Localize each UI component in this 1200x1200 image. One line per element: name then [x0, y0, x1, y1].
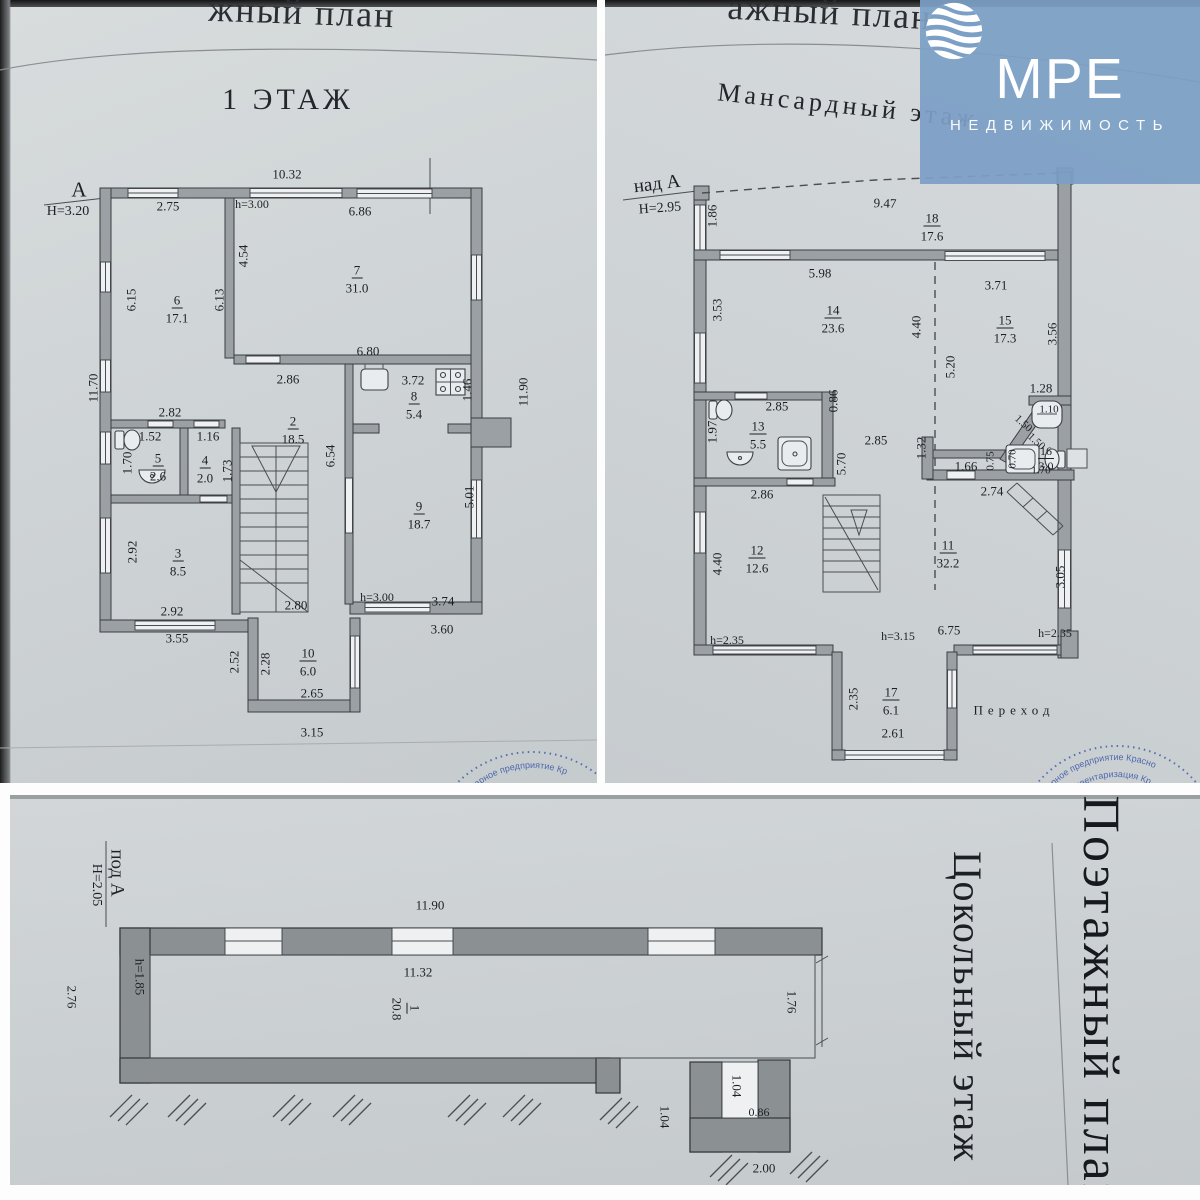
dimension-label: 5.98: [809, 267, 832, 280]
logo-wordmark: М РЕ: [995, 51, 1125, 108]
dimension-label: 11.32: [404, 966, 433, 979]
ladder-icon: [1007, 483, 1063, 535]
room-area: 31.0: [346, 282, 369, 295]
globe-icon: [923, 0, 985, 62]
room-area: 6.1: [883, 704, 899, 717]
label-perekhod: Переход: [973, 704, 1054, 717]
sink-icon: [727, 452, 753, 465]
axis-label: под А: [108, 849, 127, 896]
floorplan-collage: нитарное предприятие Кр жный план1 ЭТАЖА…: [0, 0, 1200, 1200]
room-area: 5.4: [406, 408, 422, 421]
dimension-label: 1.70: [1031, 466, 1050, 477]
dimension-label: 2.92: [161, 605, 184, 618]
photo-first-floor-plan: нитарное предприятие Кр жный план1 ЭТАЖА…: [0, 0, 597, 783]
photo-attic-floor-plan: тарное предприятие Красно ая инвентариза…: [605, 0, 1200, 783]
room-number: 1: [407, 1003, 422, 1014]
dimension-label: h=3.00: [360, 591, 394, 603]
room-area: 18.5: [282, 433, 305, 446]
dimension-label: 2.92: [126, 541, 139, 564]
room-number: 6: [172, 294, 183, 309]
dimension-label: 2.61: [882, 727, 905, 740]
dimension-label: 6.15: [125, 289, 138, 312]
room-area: 12.6: [746, 562, 769, 575]
plan1-title: 1 ЭТАЖ: [222, 85, 354, 115]
dimension-label: 1.32: [915, 437, 928, 460]
room-area: 18.7: [408, 518, 431, 531]
dimension-label: 11.90: [517, 378, 530, 407]
dimension-label: 5.20: [944, 356, 957, 379]
dimension-label: 3.05: [1054, 566, 1067, 589]
dimension-label: 2.35: [847, 688, 860, 711]
kitchen-sink-icon: [361, 364, 388, 390]
dimension-label: 9.47: [873, 196, 896, 210]
logo-letter-re: РЕ: [1045, 51, 1125, 108]
dimension-label: 6.54: [324, 445, 337, 468]
dimension-label: 1.28: [1030, 382, 1053, 395]
dimension-label: 2.75: [157, 200, 180, 213]
dimension-label: 4.40: [711, 553, 724, 576]
room-number: 15: [997, 314, 1014, 329]
svg-text:нитарное предприятие Кр: нитарное предприятие Кр: [461, 760, 569, 783]
shower-icon: [778, 437, 811, 470]
page-title-vertical: Поэтажный план: [1074, 795, 1126, 1185]
dimension-label: 1.10: [1039, 405, 1058, 416]
room-number: 17: [883, 686, 900, 701]
dimension-label: 4.54: [237, 245, 250, 268]
dimension-label: 2.82: [159, 406, 182, 419]
dimension-label: 2.76: [66, 986, 79, 1009]
dimension-label: 5.01: [463, 486, 476, 509]
room-area: 8.5: [170, 565, 186, 578]
dimension-label: 0.86: [749, 1106, 770, 1118]
room-number: 3: [173, 547, 184, 562]
dimension-label: 6.80: [357, 345, 380, 358]
dimension-label: 1.46: [461, 379, 474, 402]
room-number: 18: [924, 212, 941, 227]
dimension-label: 0.70: [1008, 449, 1019, 468]
dimension-label: 5.70: [835, 453, 848, 476]
dimension-label: 11.90: [416, 899, 445, 912]
dimension-label: 1.97: [706, 421, 719, 444]
dimension-label: 2.28: [259, 653, 272, 676]
logo-letter-m: М: [995, 51, 1044, 108]
room-number: 7: [352, 264, 363, 279]
dimension-label: 3.56: [1046, 323, 1059, 346]
dimension-label: 3.72: [402, 374, 425, 387]
room-area: 17.6: [921, 230, 944, 243]
room-area: 17.3: [994, 332, 1017, 345]
room-number: 14: [825, 304, 842, 319]
room-number: 8: [409, 390, 420, 405]
dimension-label: 1.04: [659, 1106, 672, 1129]
room-area: 6.0: [300, 665, 316, 678]
registration-stamp: нитарное предприятие Кр: [426, 752, 597, 783]
room-area: 32.2: [937, 557, 960, 570]
logo-subtitle: НЕДВИЖИМОСТЬ: [950, 117, 1170, 134]
dimension-label: 1.70: [121, 452, 134, 475]
dimension-label: 3.15: [301, 726, 324, 739]
dimension-label: h=1.85: [134, 959, 147, 996]
room-number: 13: [750, 420, 767, 435]
staircase-icon: [823, 495, 880, 592]
room-area: 17.1: [166, 312, 189, 325]
toilet-icon: [115, 430, 140, 450]
dimension-label: 6.13: [213, 289, 226, 312]
room-number: 16: [1038, 445, 1054, 459]
room-area: 2.0: [197, 472, 213, 485]
dimension-label: 2.52: [228, 651, 241, 674]
dimension-label: h=2.35: [710, 634, 744, 646]
room-area: 2.6: [150, 470, 166, 483]
room-number: 2: [288, 415, 299, 430]
photo-basement-plan: под АН=2.0511.9011.32120.8h=1.852.761.76…: [10, 795, 1200, 1185]
staircase-icon: [240, 443, 308, 612]
toilet-icon: [709, 400, 732, 420]
dimension-label: 2.86: [751, 488, 774, 501]
height-label: Н=2.95: [638, 201, 681, 218]
dimension-label: h=3.00: [235, 198, 269, 210]
room-number: 10: [300, 647, 317, 662]
dimension-label: 1.66: [955, 460, 978, 473]
dimension-label: 2.86: [277, 373, 300, 386]
dimension-label: 1.73: [221, 460, 234, 483]
dimension-label: 4.40: [910, 316, 923, 339]
dimension-label: 1.04: [731, 1075, 744, 1098]
dimension-label: 2.85: [766, 400, 789, 413]
dimension-label: 3.60: [431, 623, 454, 636]
dimension-label: 1.86: [706, 205, 719, 228]
basement-drawing: [10, 795, 1200, 1185]
dimension-label: 3.55: [166, 632, 189, 645]
room-area: 5.5: [750, 438, 766, 451]
dimension-label: 6.75: [938, 624, 961, 637]
room-number: 4: [200, 454, 211, 469]
room-area: 20.8: [391, 998, 404, 1021]
room-number: 5: [153, 452, 164, 467]
dimension-label: 1.76: [786, 991, 799, 1014]
room-number: 12: [749, 544, 766, 559]
dimension-label: 2.85: [865, 434, 888, 447]
dimension-label: 0.86: [827, 390, 840, 413]
dimension-label: 6.86: [349, 205, 372, 218]
dimension-label: 0.75: [986, 451, 997, 470]
axis-label: А: [71, 180, 86, 201]
dimension-label: 1.52: [139, 430, 162, 443]
dimension-label: 10.32: [272, 168, 301, 181]
room-number: 9: [414, 500, 425, 515]
dimension-label: 3.74: [432, 595, 455, 608]
height-label: Н=2.05: [89, 864, 103, 907]
watermark-logo: М РЕ НЕДВИЖИМОСТЬ: [920, 0, 1200, 184]
page-header-fragment: жный план: [208, 0, 396, 33]
dimension-label: 2.65: [301, 687, 324, 700]
registration-stamp: тарное предприятие Красно ая инвентариза…: [1013, 746, 1200, 783]
dimension-label: 2.80: [285, 599, 308, 612]
dimension-label: 2.00: [753, 1162, 776, 1175]
room-number: 11: [940, 539, 957, 554]
dimension-label: 11.70: [87, 374, 100, 403]
basement-title: Цокольный этаж: [947, 851, 987, 1163]
room-area: 23.6: [822, 322, 845, 335]
chimney-block: [1067, 449, 1087, 468]
dimension-label: h=3.15: [881, 630, 915, 642]
dimension-label: 3.53: [711, 299, 724, 322]
dimension-label: 2.74: [981, 485, 1004, 498]
height-label: Н=3.20: [47, 205, 90, 219]
dimension-label: h=2.35: [1038, 627, 1072, 639]
dimension-label: 1.16: [197, 430, 220, 443]
dimension-label: 3.71: [985, 279, 1008, 292]
